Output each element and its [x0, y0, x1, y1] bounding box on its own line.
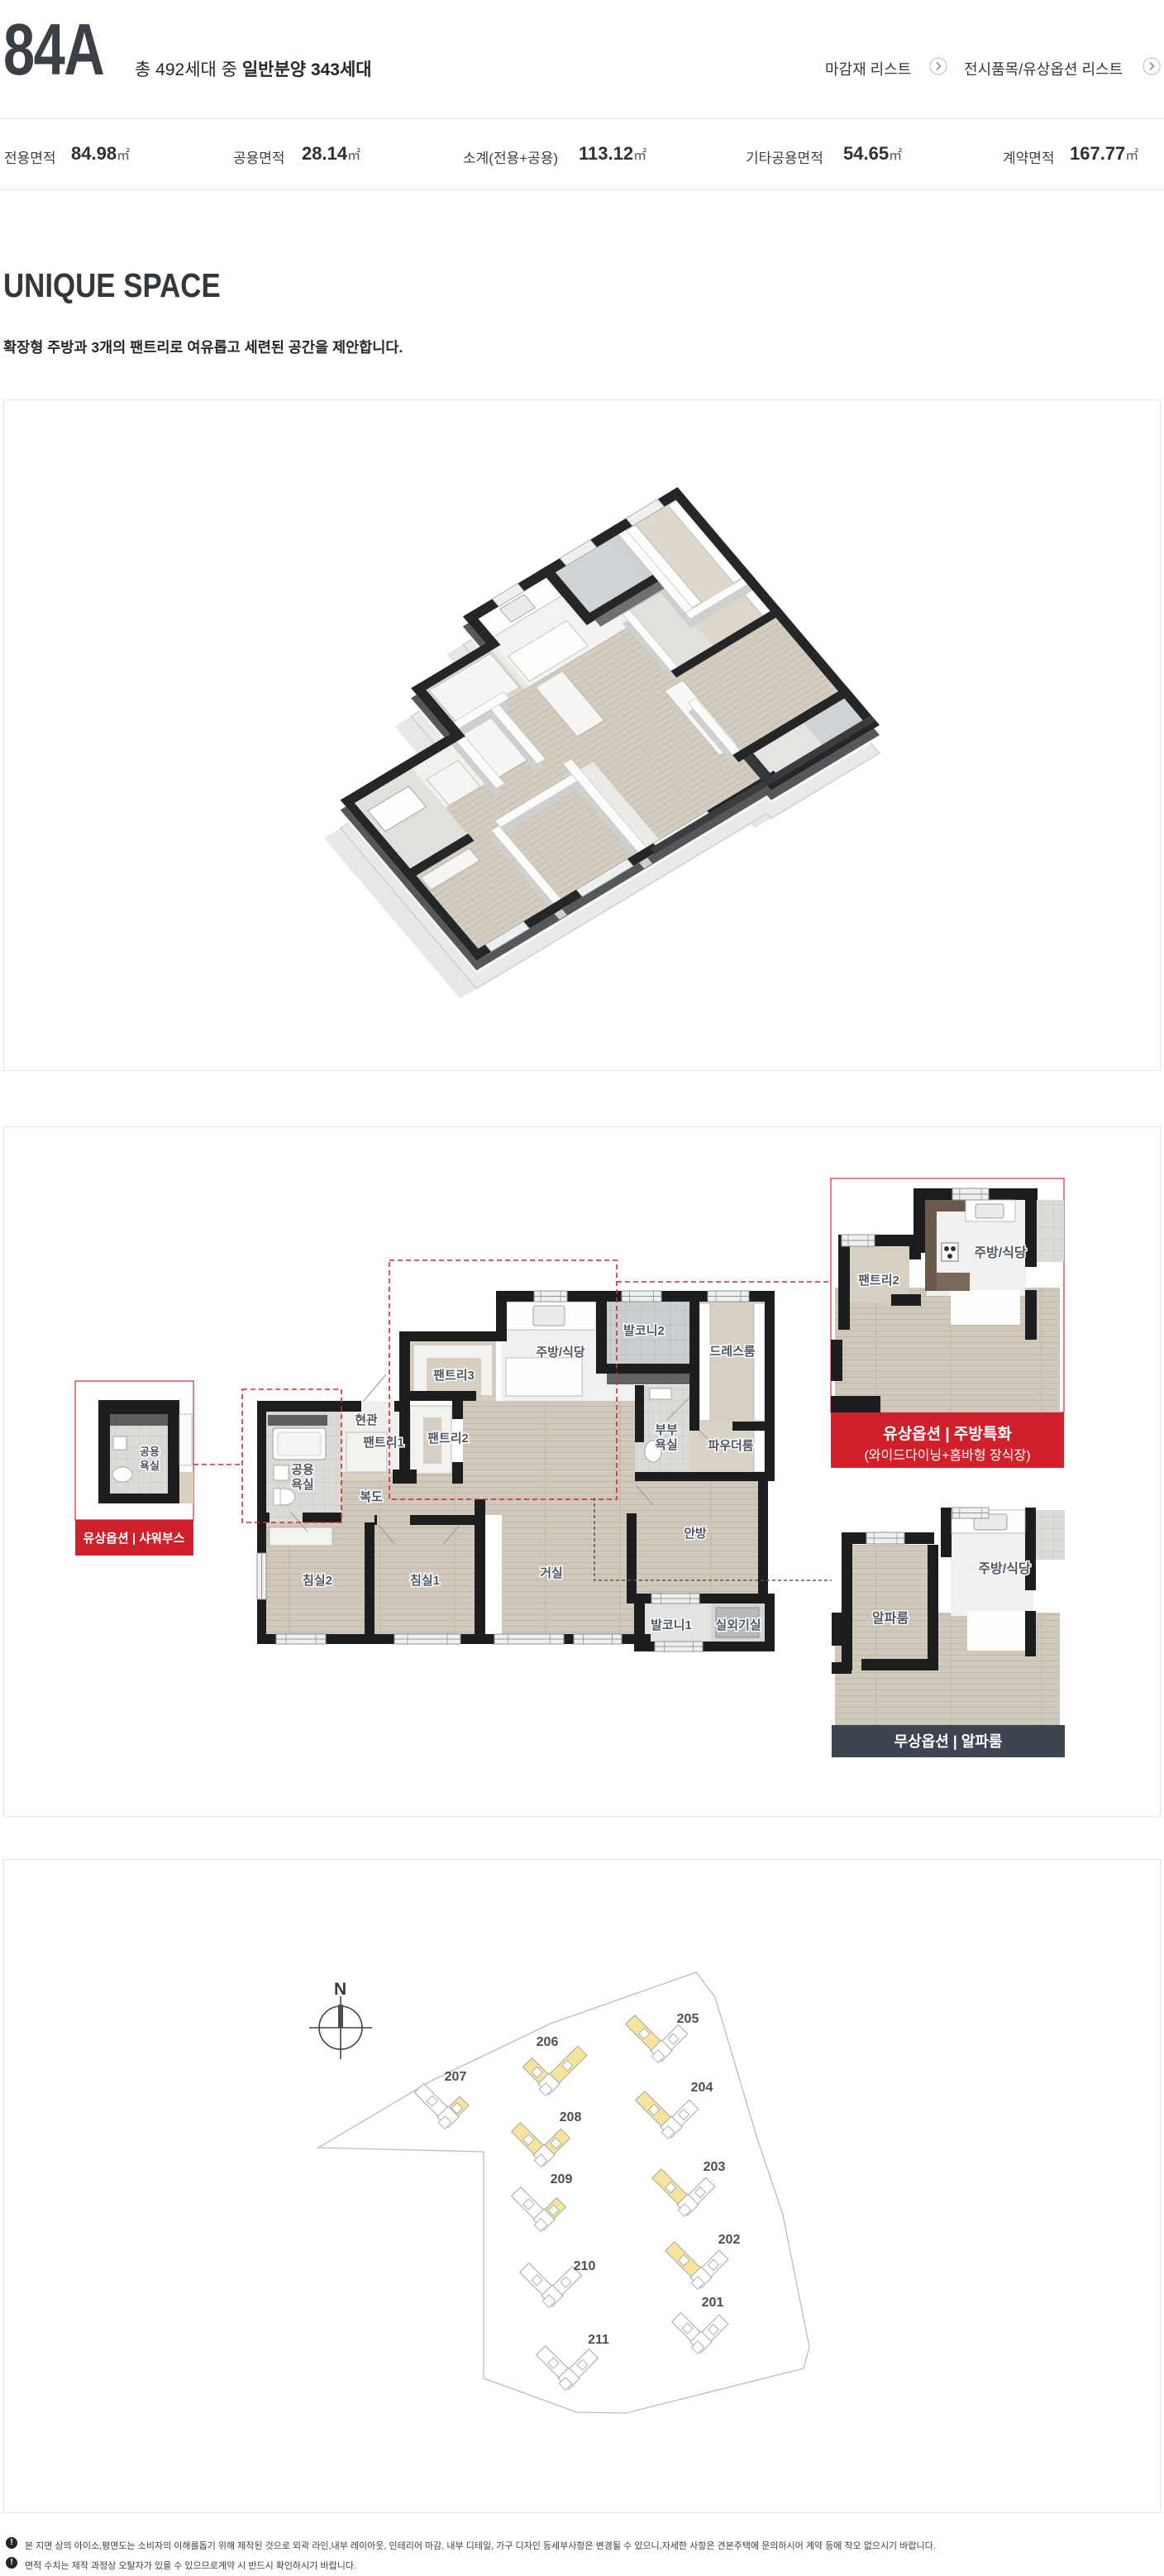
- svg-text:부부: 부부: [655, 1423, 678, 1437]
- svg-text:복도: 복도: [360, 1490, 383, 1504]
- svg-text:파우더룸: 파우더룸: [708, 1439, 753, 1453]
- svg-text:팬트리1: 팬트리1: [363, 1436, 404, 1450]
- svg-text:204: 204: [691, 2081, 713, 2095]
- svg-text:팬트리2: 팬트리2: [427, 1431, 469, 1446]
- svg-text:210: 210: [574, 2259, 596, 2273]
- svg-text:욕실: 욕실: [291, 1478, 314, 1492]
- svg-text:201: 201: [702, 2296, 724, 2310]
- svg-text:206: 206: [537, 2035, 559, 2049]
- svg-text:공용: 공용: [291, 1463, 314, 1477]
- svg-text:211: 211: [588, 2333, 609, 2347]
- svg-text:팬트리3: 팬트리3: [433, 1369, 475, 1383]
- svg-text:발코니1: 발코니1: [651, 1618, 692, 1632]
- svg-text:(와이드다이닝+홈바형 장식장): (와이드다이닝+홈바형 장식장): [864, 1448, 1030, 1463]
- svg-text:침실2: 침실2: [303, 1574, 332, 1588]
- svg-text:주방/식당: 주방/식당: [978, 1561, 1031, 1576]
- svg-text:현관: 현관: [355, 1413, 378, 1427]
- svg-text:실외기실: 실외기실: [715, 1618, 761, 1632]
- svg-text:팬트리2: 팬트리2: [858, 1274, 899, 1288]
- svg-text:안방: 안방: [684, 1526, 707, 1541]
- svg-text:발코니2: 발코니2: [623, 1324, 665, 1338]
- svg-text:202: 202: [718, 2233, 741, 2247]
- svg-text:205: 205: [677, 2012, 699, 2026]
- svg-text:침실1: 침실1: [410, 1574, 440, 1588]
- svg-text:욕실: 욕실: [655, 1438, 678, 1452]
- svg-text:208: 208: [560, 2110, 582, 2124]
- svg-text:무상옵션 | 알파룸: 무상옵션 | 알파룸: [894, 1733, 1003, 1750]
- svg-text:공용: 공용: [140, 1446, 160, 1458]
- svg-text:알파룸: 알파룸: [872, 1611, 909, 1626]
- svg-text:유상옵션 | 주방특화: 유상옵션 | 주방특화: [883, 1425, 1012, 1443]
- svg-text:욕실: 욕실: [140, 1460, 160, 1472]
- svg-text:유상옵션 | 샤워부스: 유상옵션 | 샤워부스: [83, 1532, 185, 1546]
- svg-text:드레스룸: 드레스룸: [709, 1345, 755, 1359]
- svg-text:N: N: [334, 1980, 346, 1999]
- svg-text:209: 209: [551, 2172, 573, 2186]
- svg-text:주방/식당: 주방/식당: [536, 1345, 585, 1360]
- svg-text:207: 207: [445, 2070, 467, 2084]
- svg-text:거실: 거실: [540, 1566, 563, 1580]
- svg-text:주방/식당: 주방/식당: [974, 1245, 1027, 1260]
- svg-text:203: 203: [704, 2160, 726, 2174]
